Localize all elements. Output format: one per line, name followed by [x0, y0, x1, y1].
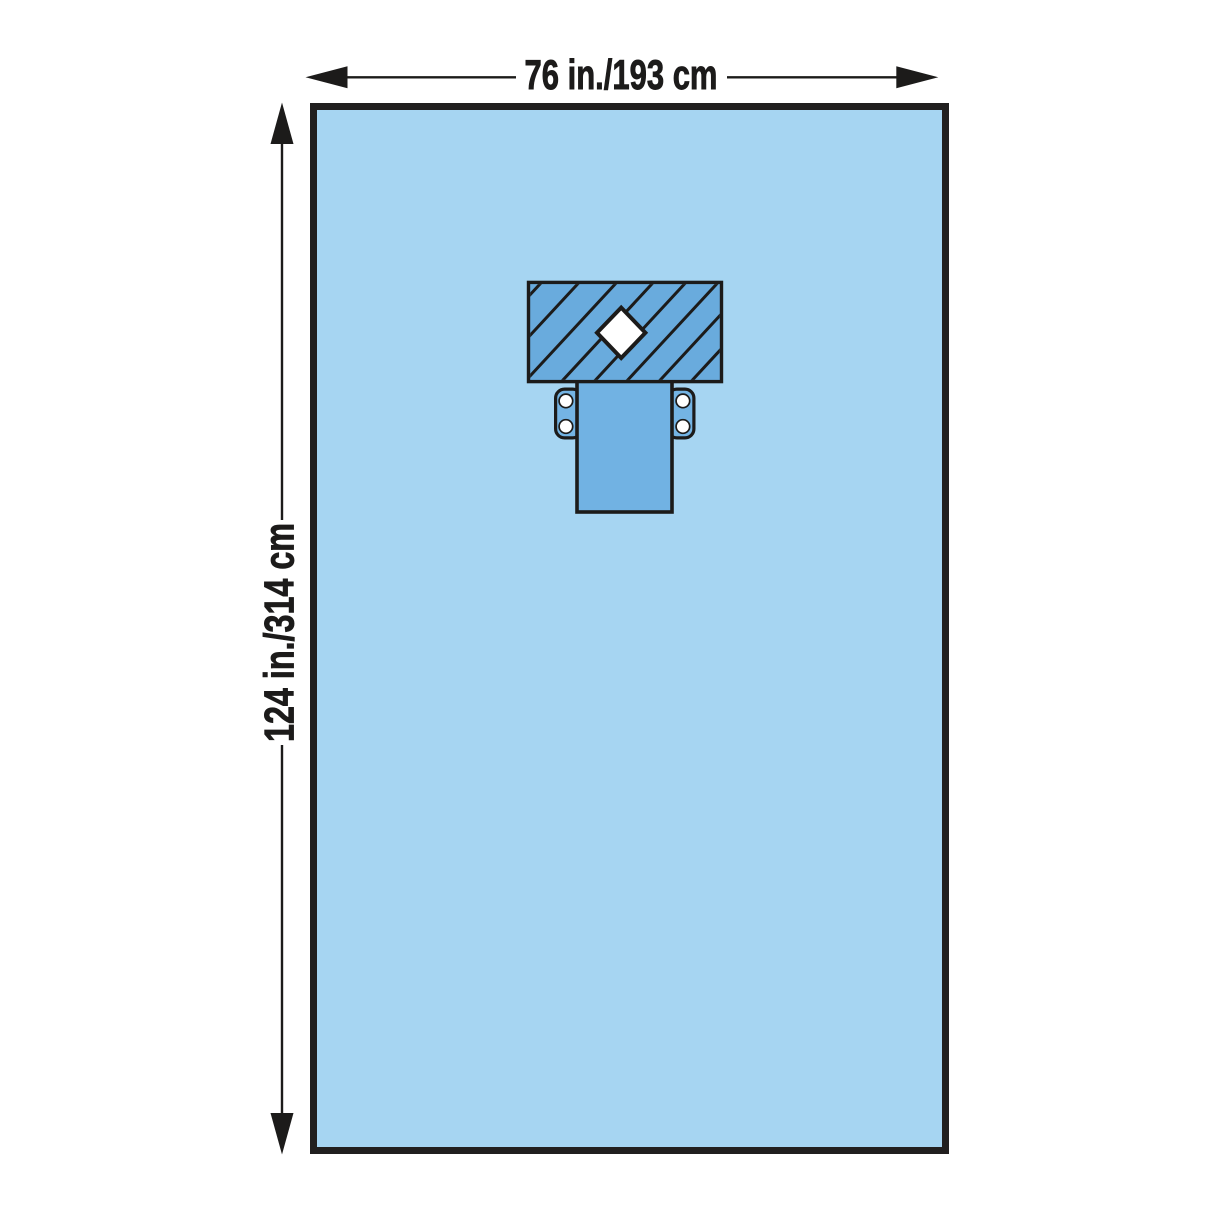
svg-text:124 in./314 cm: 124 in./314 cm	[256, 523, 303, 742]
svg-text:76 in./193 cm: 76 in./193 cm	[525, 51, 718, 98]
